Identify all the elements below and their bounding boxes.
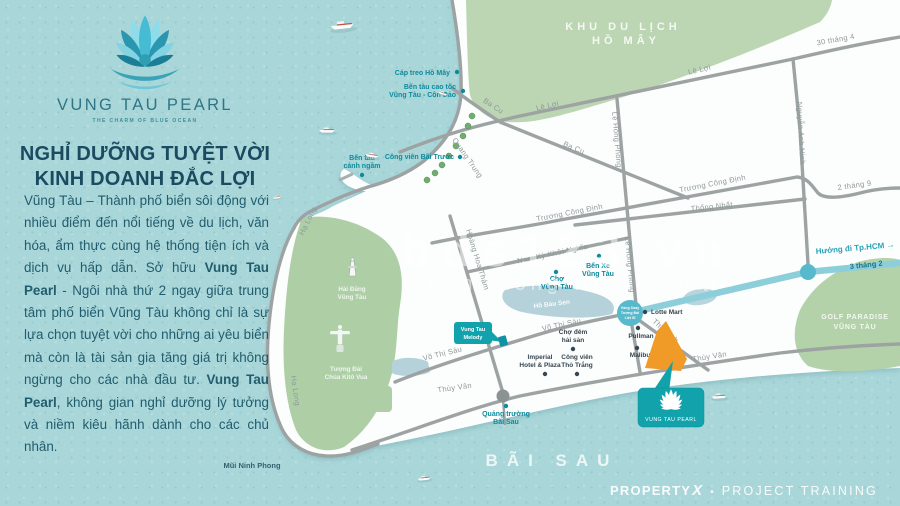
roundabout-label-2: Tượng Đài <box>621 311 639 315</box>
intro-text-3: , không gian nghỉ dưỡng lý tưởng và niềm… <box>24 395 269 455</box>
pullman-label: Pullman <box>628 333 653 340</box>
ho-may-area-label-2: HỒ MÂY <box>592 34 660 47</box>
poster: Vòng Xoay Tượng Đài Liệt Sĩ Lê Lợi Lê Lợ… <box>0 0 900 506</box>
boat-icon <box>417 475 433 483</box>
roundabout-label-1: Vòng Xoay <box>621 306 640 310</box>
tho-trang-park-label-2: Thỏ Trắng <box>561 360 592 369</box>
headline: NGHỈ DƯỠNG TUYỆT VỜI KINH DOANH ĐẮC LỢI <box>0 142 290 192</box>
headline-line1: NGHỈ DƯỠNG TUYỆT VỜI <box>0 142 290 167</box>
golf-area-label-2: VŨNG TÀU <box>834 322 877 331</box>
monument-roundabout: Vòng Xoay Tượng Đài Liệt Sĩ <box>617 300 643 326</box>
small-park <box>368 386 392 412</box>
boat-icon <box>319 127 338 135</box>
imperial-label-1: Imperial <box>528 354 553 361</box>
christ-statue-label-1: Tượng Đài <box>330 366 362 373</box>
bai-sau-square-label-2: Bãi Sau <box>493 419 519 426</box>
propertyx-x: X <box>692 482 702 499</box>
lotte-dot <box>643 310 647 314</box>
roundabout-label-3: Liệt Sĩ <box>625 316 637 320</box>
lighthouse-label-2: Vũng Tàu <box>338 294 367 301</box>
boat-icon <box>272 195 282 201</box>
bai-sau-square-label-1: Quảng trường <box>482 411 530 418</box>
bai-truoc-park-label: Công viên Bãi Trước <box>385 154 454 161</box>
ho-may-area-label-1: KHU DU LỊCH <box>565 21 681 33</box>
footer-label: PROJECT TRAINING <box>722 484 878 498</box>
footer-credits: PROPERTYX • PROJECT TRAINING <box>610 482 878 500</box>
callout-title: VUNG TAU PEARL <box>645 417 697 423</box>
tho-trang-park-dot <box>575 372 579 376</box>
boat-icon <box>329 20 358 34</box>
cap-treo-label: Cáp treo Hồ Mây <box>395 68 450 77</box>
bai-truoc-park-dot <box>458 155 462 159</box>
ben-tau-cao-toc-label-1: Bến tàu cao tốc <box>404 83 456 91</box>
beach-roundabout <box>497 390 510 403</box>
bai-sau-square-dot <box>504 404 508 408</box>
left-panel: VUNG TAU PEARL THE CHARM OF BLUE OCEAN N… <box>0 0 290 192</box>
brand-tagline: THE CHARM OF BLUE OCEAN <box>0 118 290 124</box>
pullman-dot <box>636 326 640 330</box>
brand-wordmark: VUNG TAU PEARL <box>0 96 290 115</box>
watermark-line1: bds123.vn <box>402 224 735 276</box>
malibu-dot <box>635 346 639 350</box>
propertyx-logo: PROPERTY <box>610 483 691 498</box>
golf-area-label-1: GOLF PARADISE <box>821 314 888 321</box>
lotus-logo-icon <box>106 12 184 94</box>
night-market-label-2: hải sản <box>562 337 584 344</box>
christ-statue-label-2: Chúa Kitô Vua <box>325 374 368 381</box>
cape-label: Mũi Ninh Phong <box>223 461 280 470</box>
watermark-line2: kênh thông tin nhà đất <box>414 273 722 295</box>
ben-tau-cao-toc-dot <box>461 89 465 93</box>
brand-logo: VUNG TAU PEARL THE CHARM OF BLUE OCEAN <box>0 0 290 124</box>
lighthouse-label-1: Hải Đăng <box>338 286 365 293</box>
imperial-label-2: Hotel & Plaza <box>519 362 561 369</box>
intro-paragraph: Vũng Tàu – Thành phố biển sôi động với n… <box>24 190 269 459</box>
night-market-dot <box>571 347 575 351</box>
tho-trang-park-label-1: Công viên <box>561 354 592 361</box>
headline-line2: KINH DOANH ĐẮC LỢI <box>0 167 290 192</box>
malibu-label: Malibu <box>630 352 651 359</box>
boat-icon <box>711 393 729 402</box>
ben-tau-canh-ngam-dot <box>360 173 364 177</box>
bai-sau-sea-label: BÃI SAU <box>486 450 619 470</box>
melody-label-1: Vung Tau <box>461 327 485 333</box>
footer-separator: • <box>710 487 714 498</box>
ben-tau-canh-ngam-label-2: cánh ngầm <box>344 161 381 170</box>
cap-treo-dot <box>455 70 459 74</box>
imperial-dot <box>543 372 547 376</box>
junction-circle <box>800 264 816 280</box>
lotte-label: Lotte Mart <box>651 309 683 316</box>
night-market-label-1: Chợ đêm <box>559 329 588 336</box>
melody-label-2: Melody <box>464 335 484 341</box>
